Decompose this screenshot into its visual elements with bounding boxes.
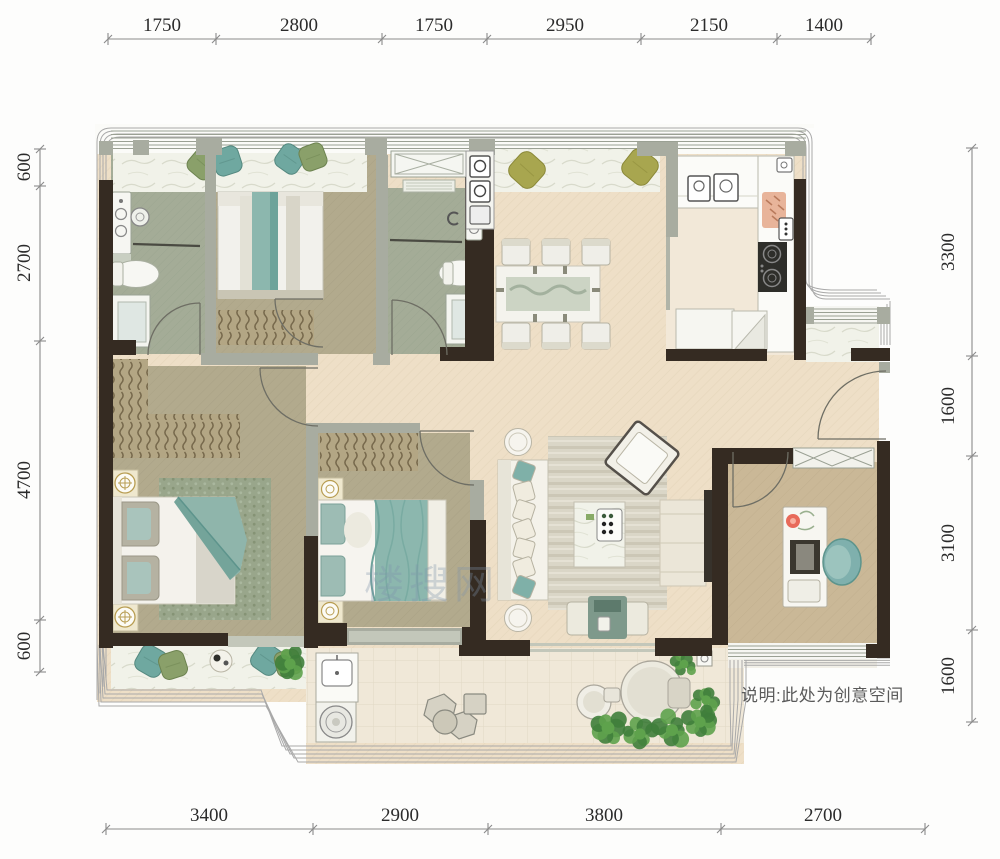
svg-text:600: 600 — [14, 632, 35, 661]
svg-text:2950: 2950 — [546, 15, 584, 36]
svg-text:3400: 3400 — [190, 805, 228, 826]
svg-text:600: 600 — [14, 153, 35, 182]
svg-text:2800: 2800 — [280, 15, 318, 36]
svg-text:3100: 3100 — [938, 524, 959, 562]
svg-text:2700: 2700 — [14, 244, 35, 282]
svg-text:楼搜网: 楼搜网 — [364, 563, 499, 607]
svg-text:1600: 1600 — [938, 657, 959, 695]
svg-text:3300: 3300 — [938, 233, 959, 271]
svg-text:3800: 3800 — [585, 805, 623, 826]
svg-text:2900: 2900 — [381, 805, 419, 826]
svg-text:4700: 4700 — [14, 461, 35, 499]
svg-text:1750: 1750 — [415, 15, 453, 36]
svg-text:1400: 1400 — [805, 15, 843, 36]
svg-text:1600: 1600 — [938, 387, 959, 425]
svg-text:1750: 1750 — [143, 15, 181, 36]
svg-text:2150: 2150 — [690, 15, 728, 36]
svg-text:2700: 2700 — [804, 805, 842, 826]
svg-text:说明:此处为创意空间: 说明:此处为创意空间 — [741, 686, 904, 705]
